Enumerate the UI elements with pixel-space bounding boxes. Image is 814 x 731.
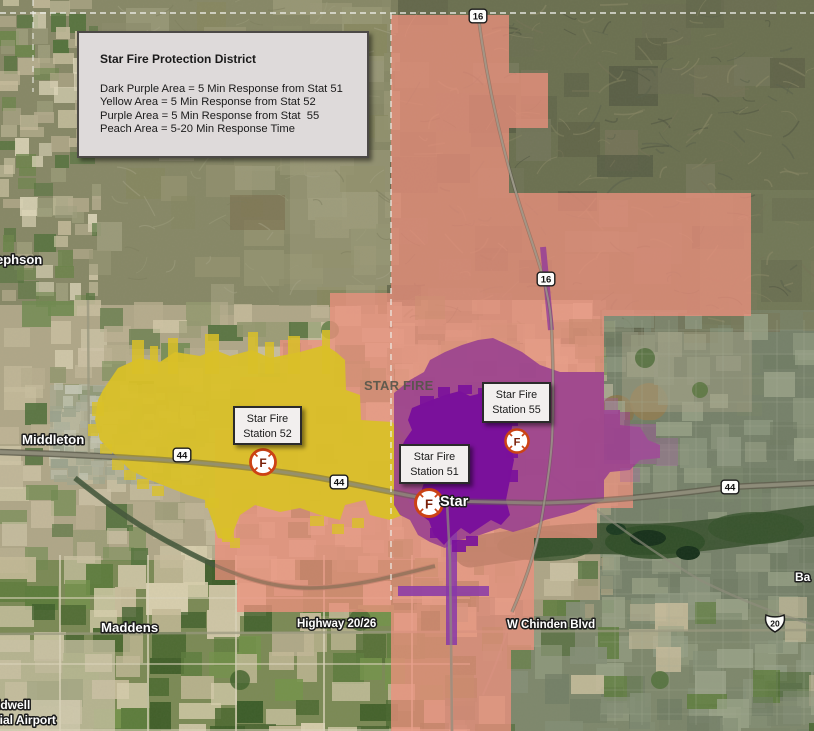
svg-text:44: 44 [177,451,188,462]
svg-text:Highway 20/26: Highway 20/26 [297,618,376,630]
svg-text:ephson: ephson [0,252,42,267]
svg-text:44: 44 [334,478,345,489]
svg-text:F: F [259,456,266,470]
svg-text:20: 20 [770,618,780,628]
svg-text:16: 16 [541,275,552,286]
svg-text:Ba: Ba [795,570,811,584]
svg-text:Maddens: Maddens [101,620,158,635]
svg-text:44: 44 [725,483,736,494]
svg-text:16: 16 [473,12,484,23]
svg-text:ldwell: ldwell [0,698,30,712]
svg-text:Star: Star [440,494,469,510]
svg-text:F: F [514,437,521,449]
svg-text:rial Airport: rial Airport [0,713,56,727]
svg-text:STAR FIRE: STAR FIRE [364,378,434,393]
svg-text:W Chinden Blvd: W Chinden Blvd [507,619,595,631]
svg-text:F: F [425,496,433,511]
svg-text:Middleton: Middleton [22,432,84,447]
